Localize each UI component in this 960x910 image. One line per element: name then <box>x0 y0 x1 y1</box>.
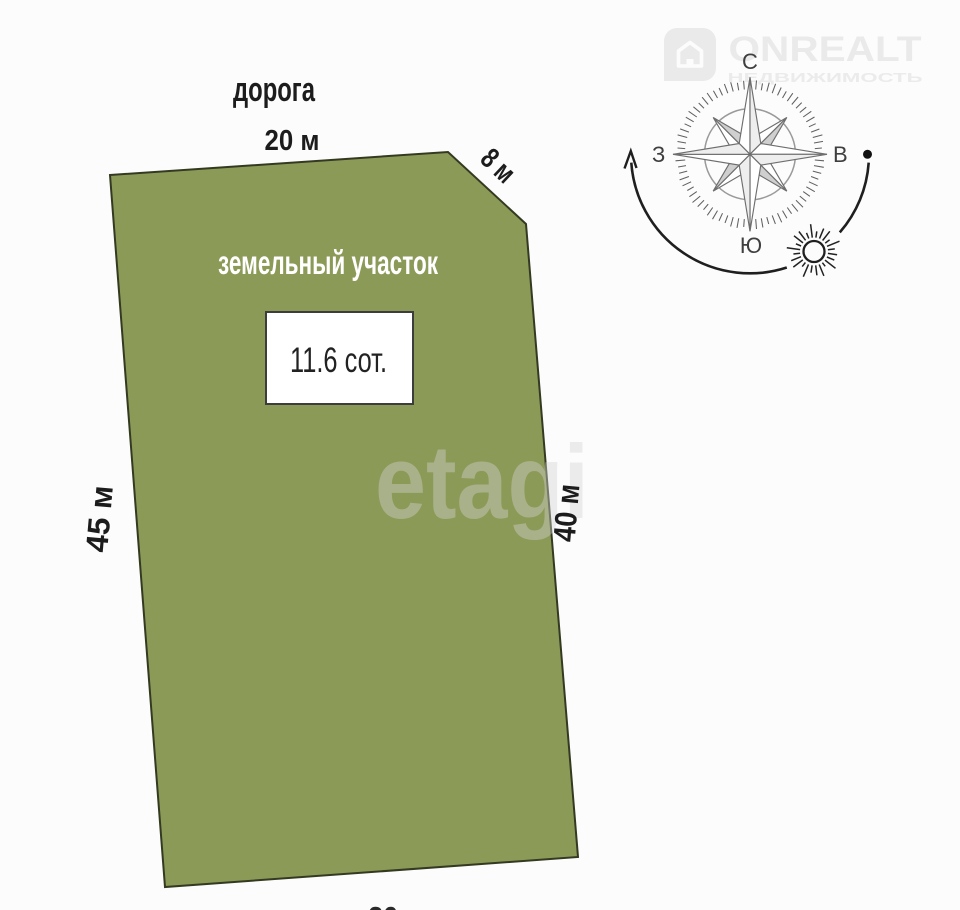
svg-text:Ю: Ю <box>740 233 762 258</box>
svg-text:земельный участок: земельный участок <box>218 244 438 281</box>
svg-text:З: З <box>652 142 665 167</box>
svg-text:40 м: 40 м <box>547 482 587 543</box>
svg-text:дорога: дорога <box>233 71 316 109</box>
svg-text:20 м: 20 м <box>265 125 320 157</box>
svg-text:В: В <box>833 142 848 167</box>
svg-text:С: С <box>742 49 758 74</box>
svg-text:45 м: 45 м <box>79 484 120 554</box>
svg-text:11.6 сот.: 11.6 сот. <box>290 341 387 380</box>
svg-text:20 м: 20 м <box>368 900 426 910</box>
